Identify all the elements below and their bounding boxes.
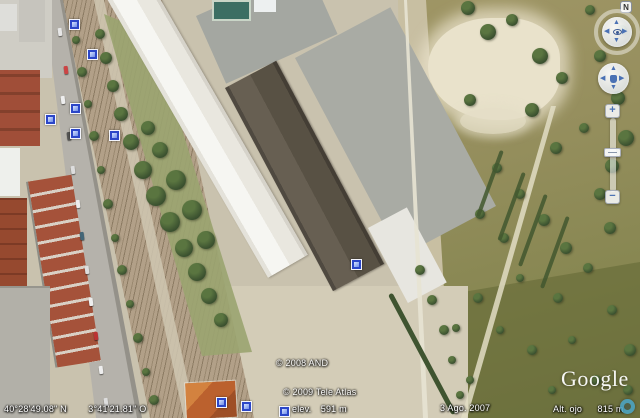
photo-marker-icon[interactable] xyxy=(216,397,227,408)
elevation-value: 591 m xyxy=(321,404,347,414)
zoom-out-button[interactable]: − xyxy=(605,190,620,204)
photo-marker-icon[interactable] xyxy=(241,401,252,412)
pan-left-arrow-icon[interactable]: ◀ xyxy=(600,75,605,82)
photo-marker-icon[interactable] xyxy=(70,103,81,114)
photo-marker-icon[interactable] xyxy=(70,128,81,139)
coordinates-readout: 40°28'49.08" N 3°41'21.81" O xyxy=(4,404,146,414)
satellite-map-view[interactable]: © 2008 AND © 2009 Tele Atlas 40°28'49.08… xyxy=(0,0,640,418)
copyright-and: © 2008 AND xyxy=(276,358,328,368)
eye-altitude-readout: Alt. ojo 815 m xyxy=(553,404,624,414)
look-down-arrow-icon[interactable]: ▼ xyxy=(613,37,620,44)
zoom-slider-handle[interactable] xyxy=(604,148,621,157)
pan-down-arrow-icon[interactable]: ▼ xyxy=(610,84,617,91)
elevation-label: elev. xyxy=(292,404,311,414)
photo-marker-icon[interactable] xyxy=(87,49,98,60)
streaming-indicator-icon xyxy=(620,399,635,414)
imagery-date: 3 Ago. 2007 xyxy=(440,403,490,413)
longitude-value: 3°41'21.81" O xyxy=(88,404,146,414)
photo-marker-icon[interactable] xyxy=(279,406,290,417)
photo-marker-icon[interactable] xyxy=(351,259,362,270)
photo-marker-icon[interactable] xyxy=(109,130,120,141)
photo-markers-layer xyxy=(0,0,640,418)
pan-up-arrow-icon[interactable]: ▲ xyxy=(610,65,617,72)
pan-right-arrow-icon[interactable]: ▶ xyxy=(619,75,624,82)
copyright-tele-atlas: © 2009 Tele Atlas xyxy=(283,387,356,397)
look-right-arrow-icon[interactable]: ▶ xyxy=(622,28,627,35)
eye-altitude-label: Alt. ojo xyxy=(553,404,582,414)
google-logo: Google xyxy=(561,366,629,392)
hand-icon xyxy=(610,75,617,83)
zoom-in-button[interactable]: + xyxy=(605,104,620,118)
look-up-arrow-icon[interactable]: ▲ xyxy=(613,19,620,26)
look-left-arrow-icon[interactable]: ◀ xyxy=(604,28,609,35)
photo-marker-icon[interactable] xyxy=(45,114,56,125)
elevation-readout: elev. 591 m xyxy=(292,404,347,414)
eye-icon xyxy=(613,29,622,35)
latitude-value: 40°28'49.08" N xyxy=(4,404,67,414)
photo-marker-icon[interactable] xyxy=(69,19,80,30)
